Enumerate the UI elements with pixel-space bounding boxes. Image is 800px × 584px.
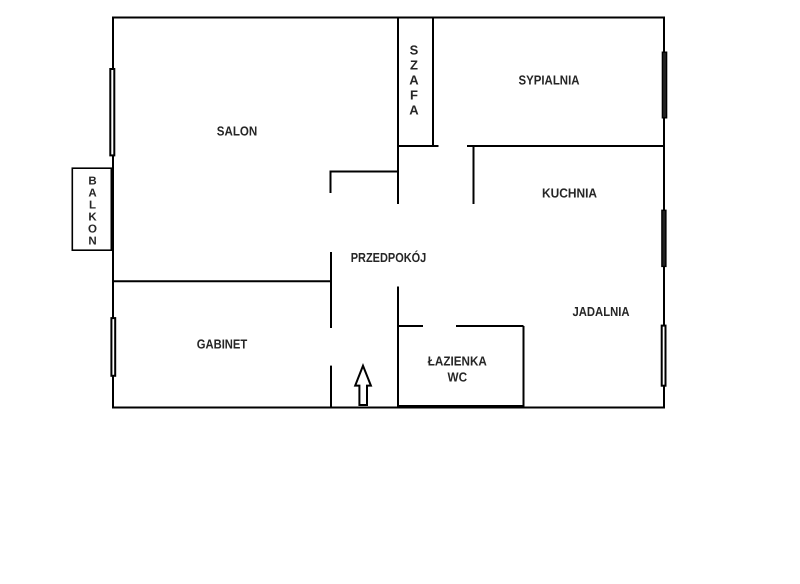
svg-text:A: A [409,73,419,88]
svg-text:JADALNIA: JADALNIA [573,304,631,319]
svg-text:O: O [88,223,97,235]
svg-text:B: B [88,175,96,187]
svg-text:SYPIALNIA: SYPIALNIA [519,72,581,87]
svg-text:KUCHNIA: KUCHNIA [542,185,598,200]
svg-text:A: A [409,103,419,118]
svg-text:SALON: SALON [217,124,258,139]
svg-text:F: F [410,88,418,103]
svg-text:L: L [89,199,96,211]
svg-text:A: A [88,187,96,199]
svg-text:PRZEDPOKÓJ: PRZEDPOKÓJ [351,250,427,265]
svg-text:GABINET: GABINET [197,336,248,351]
svg-text:N: N [88,235,96,247]
svg-text:K: K [88,211,97,223]
svg-text:Z: Z [410,58,418,73]
svg-text:WC: WC [448,369,468,384]
svg-text:S: S [410,43,419,58]
svg-text:ŁAZIENKA: ŁAZIENKA [428,353,488,368]
